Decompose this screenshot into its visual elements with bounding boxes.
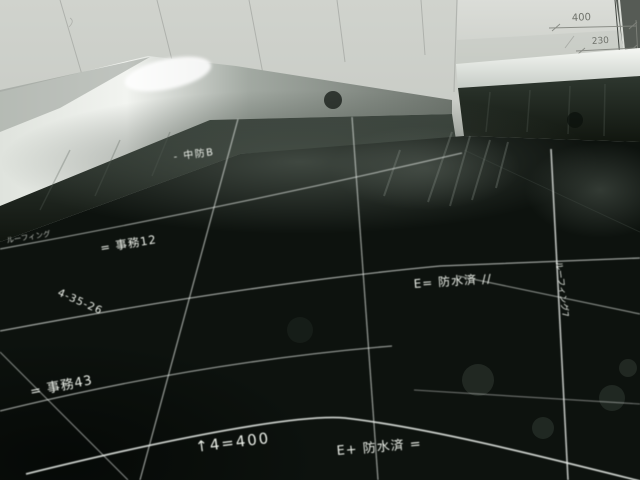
floor-membrane	[0, 90, 640, 480]
pencil-dim-230-label: 230	[592, 36, 610, 47]
pencil-dim-400-label: 400	[572, 12, 592, 24]
photo-canvas: 400 230	[0, 0, 640, 480]
photo-waterproofing-floor: 400 230	[0, 0, 640, 480]
floor-sheen-center	[330, 126, 520, 210]
